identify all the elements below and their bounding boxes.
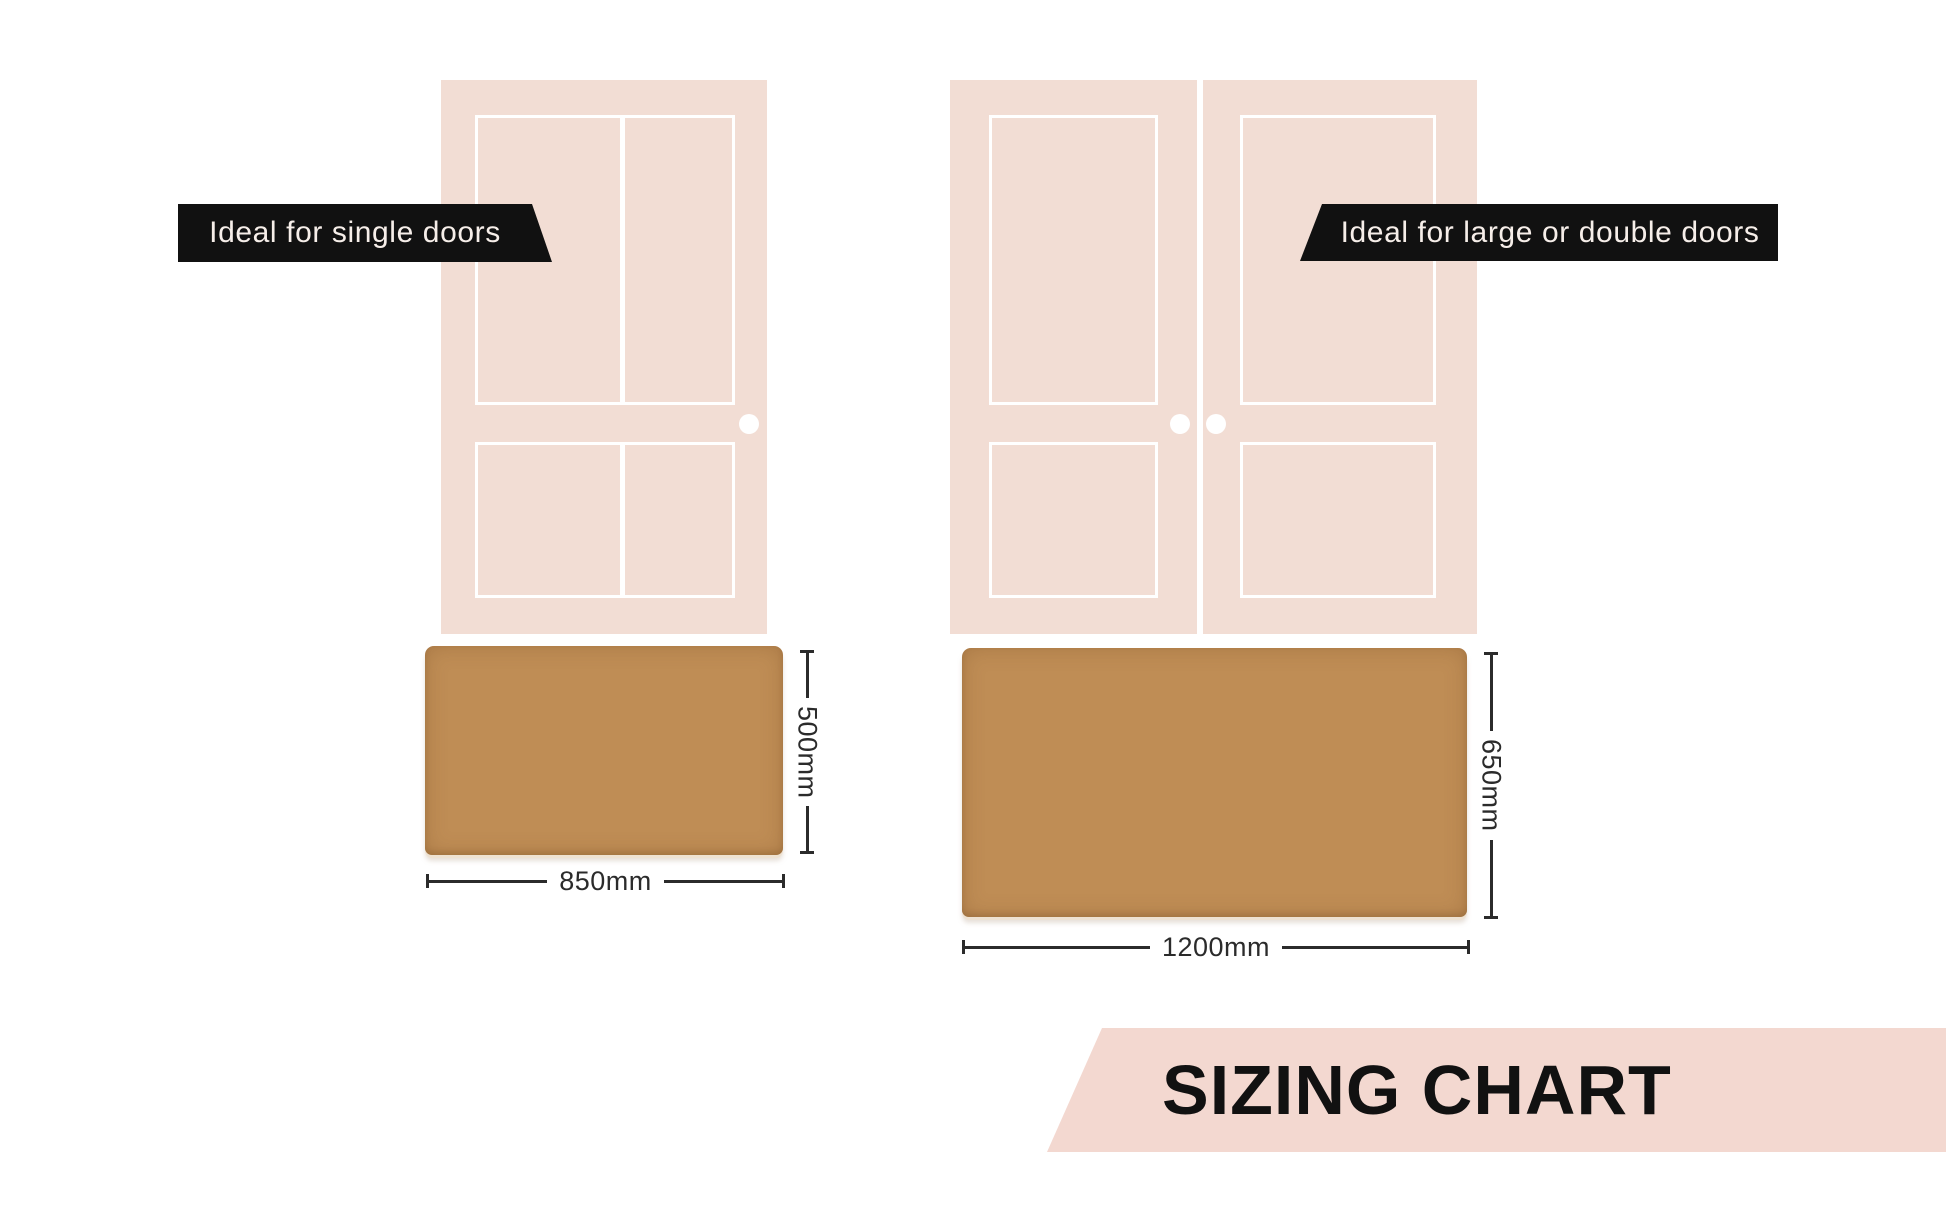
- double-mat-height-label: 650mm: [1476, 739, 1507, 832]
- door-panel: [989, 442, 1158, 598]
- single-mat-width-dimension: 850mm: [426, 874, 785, 888]
- single-door-illustration: [441, 80, 767, 634]
- single-doormat-image: [425, 646, 783, 855]
- door-panel: [622, 115, 735, 405]
- dimension-endcap: [800, 851, 814, 854]
- double-door-right-leaf: [1203, 80, 1477, 634]
- double-mat-width-label: 1200mm: [1162, 932, 1270, 963]
- dimension-line: [1490, 655, 1493, 731]
- door-panel: [622, 442, 735, 598]
- dimension-line: [965, 946, 1150, 949]
- dimension-endcap: [1484, 916, 1498, 919]
- double-door-banner: Ideal for large or double doors: [1300, 204, 1778, 261]
- single-door-banner: Ideal for single doors: [178, 204, 552, 262]
- door-panel: [1240, 442, 1436, 598]
- double-door-illustration: [950, 80, 1477, 634]
- sizing-chart-infographic: Ideal for single doors Ideal for large o…: [0, 0, 1946, 1216]
- single-door-banner-label: Ideal for single doors: [209, 204, 501, 262]
- door-knob-icon: [1170, 414, 1190, 434]
- dimension-line: [806, 653, 809, 698]
- single-mat-height-dimension: 500mm: [800, 650, 814, 854]
- dimension-endcap: [1467, 940, 1470, 954]
- dimension-line: [1490, 840, 1493, 916]
- dimension-endcap: [782, 874, 785, 888]
- door-knob-icon: [1206, 414, 1226, 434]
- double-door-left-leaf: [950, 80, 1197, 634]
- dimension-line: [1282, 946, 1467, 949]
- page-title: SIZING CHART: [1047, 1028, 1946, 1152]
- door-knob-icon: [739, 414, 759, 434]
- double-mat-height-dimension: 650mm: [1484, 652, 1498, 919]
- footer-band: SIZING CHART: [1047, 1028, 1946, 1152]
- door-panel: [475, 442, 623, 598]
- single-mat-height-label: 500mm: [792, 706, 823, 799]
- double-doormat-image: [962, 648, 1467, 917]
- dimension-line: [806, 806, 809, 851]
- double-door-banner-label: Ideal for large or double doors: [1341, 204, 1760, 261]
- door-panel: [989, 115, 1158, 405]
- single-mat-width-label: 850mm: [559, 866, 652, 897]
- double-mat-width-dimension: 1200mm: [962, 940, 1470, 954]
- dimension-line: [429, 880, 547, 883]
- dimension-line: [664, 880, 782, 883]
